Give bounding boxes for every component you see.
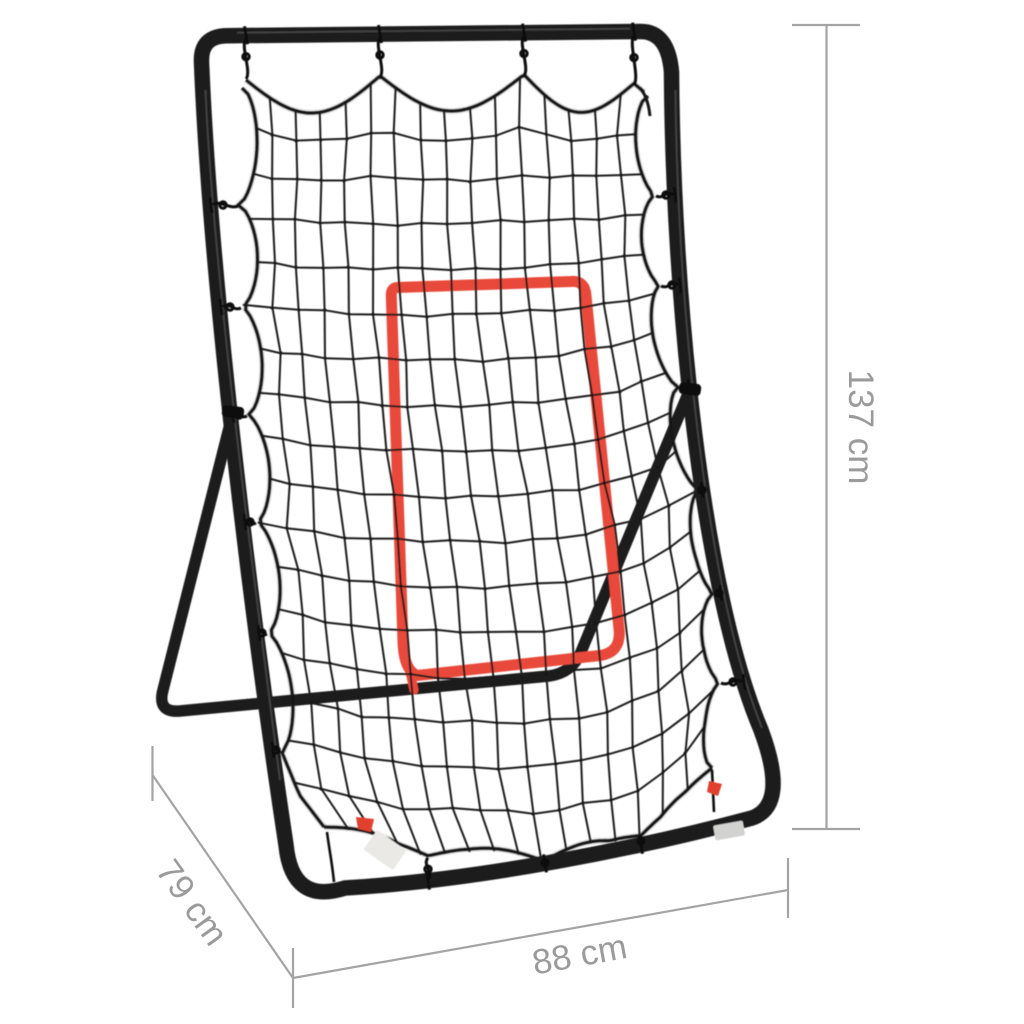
svg-text:137 cm: 137 cm <box>841 370 880 485</box>
